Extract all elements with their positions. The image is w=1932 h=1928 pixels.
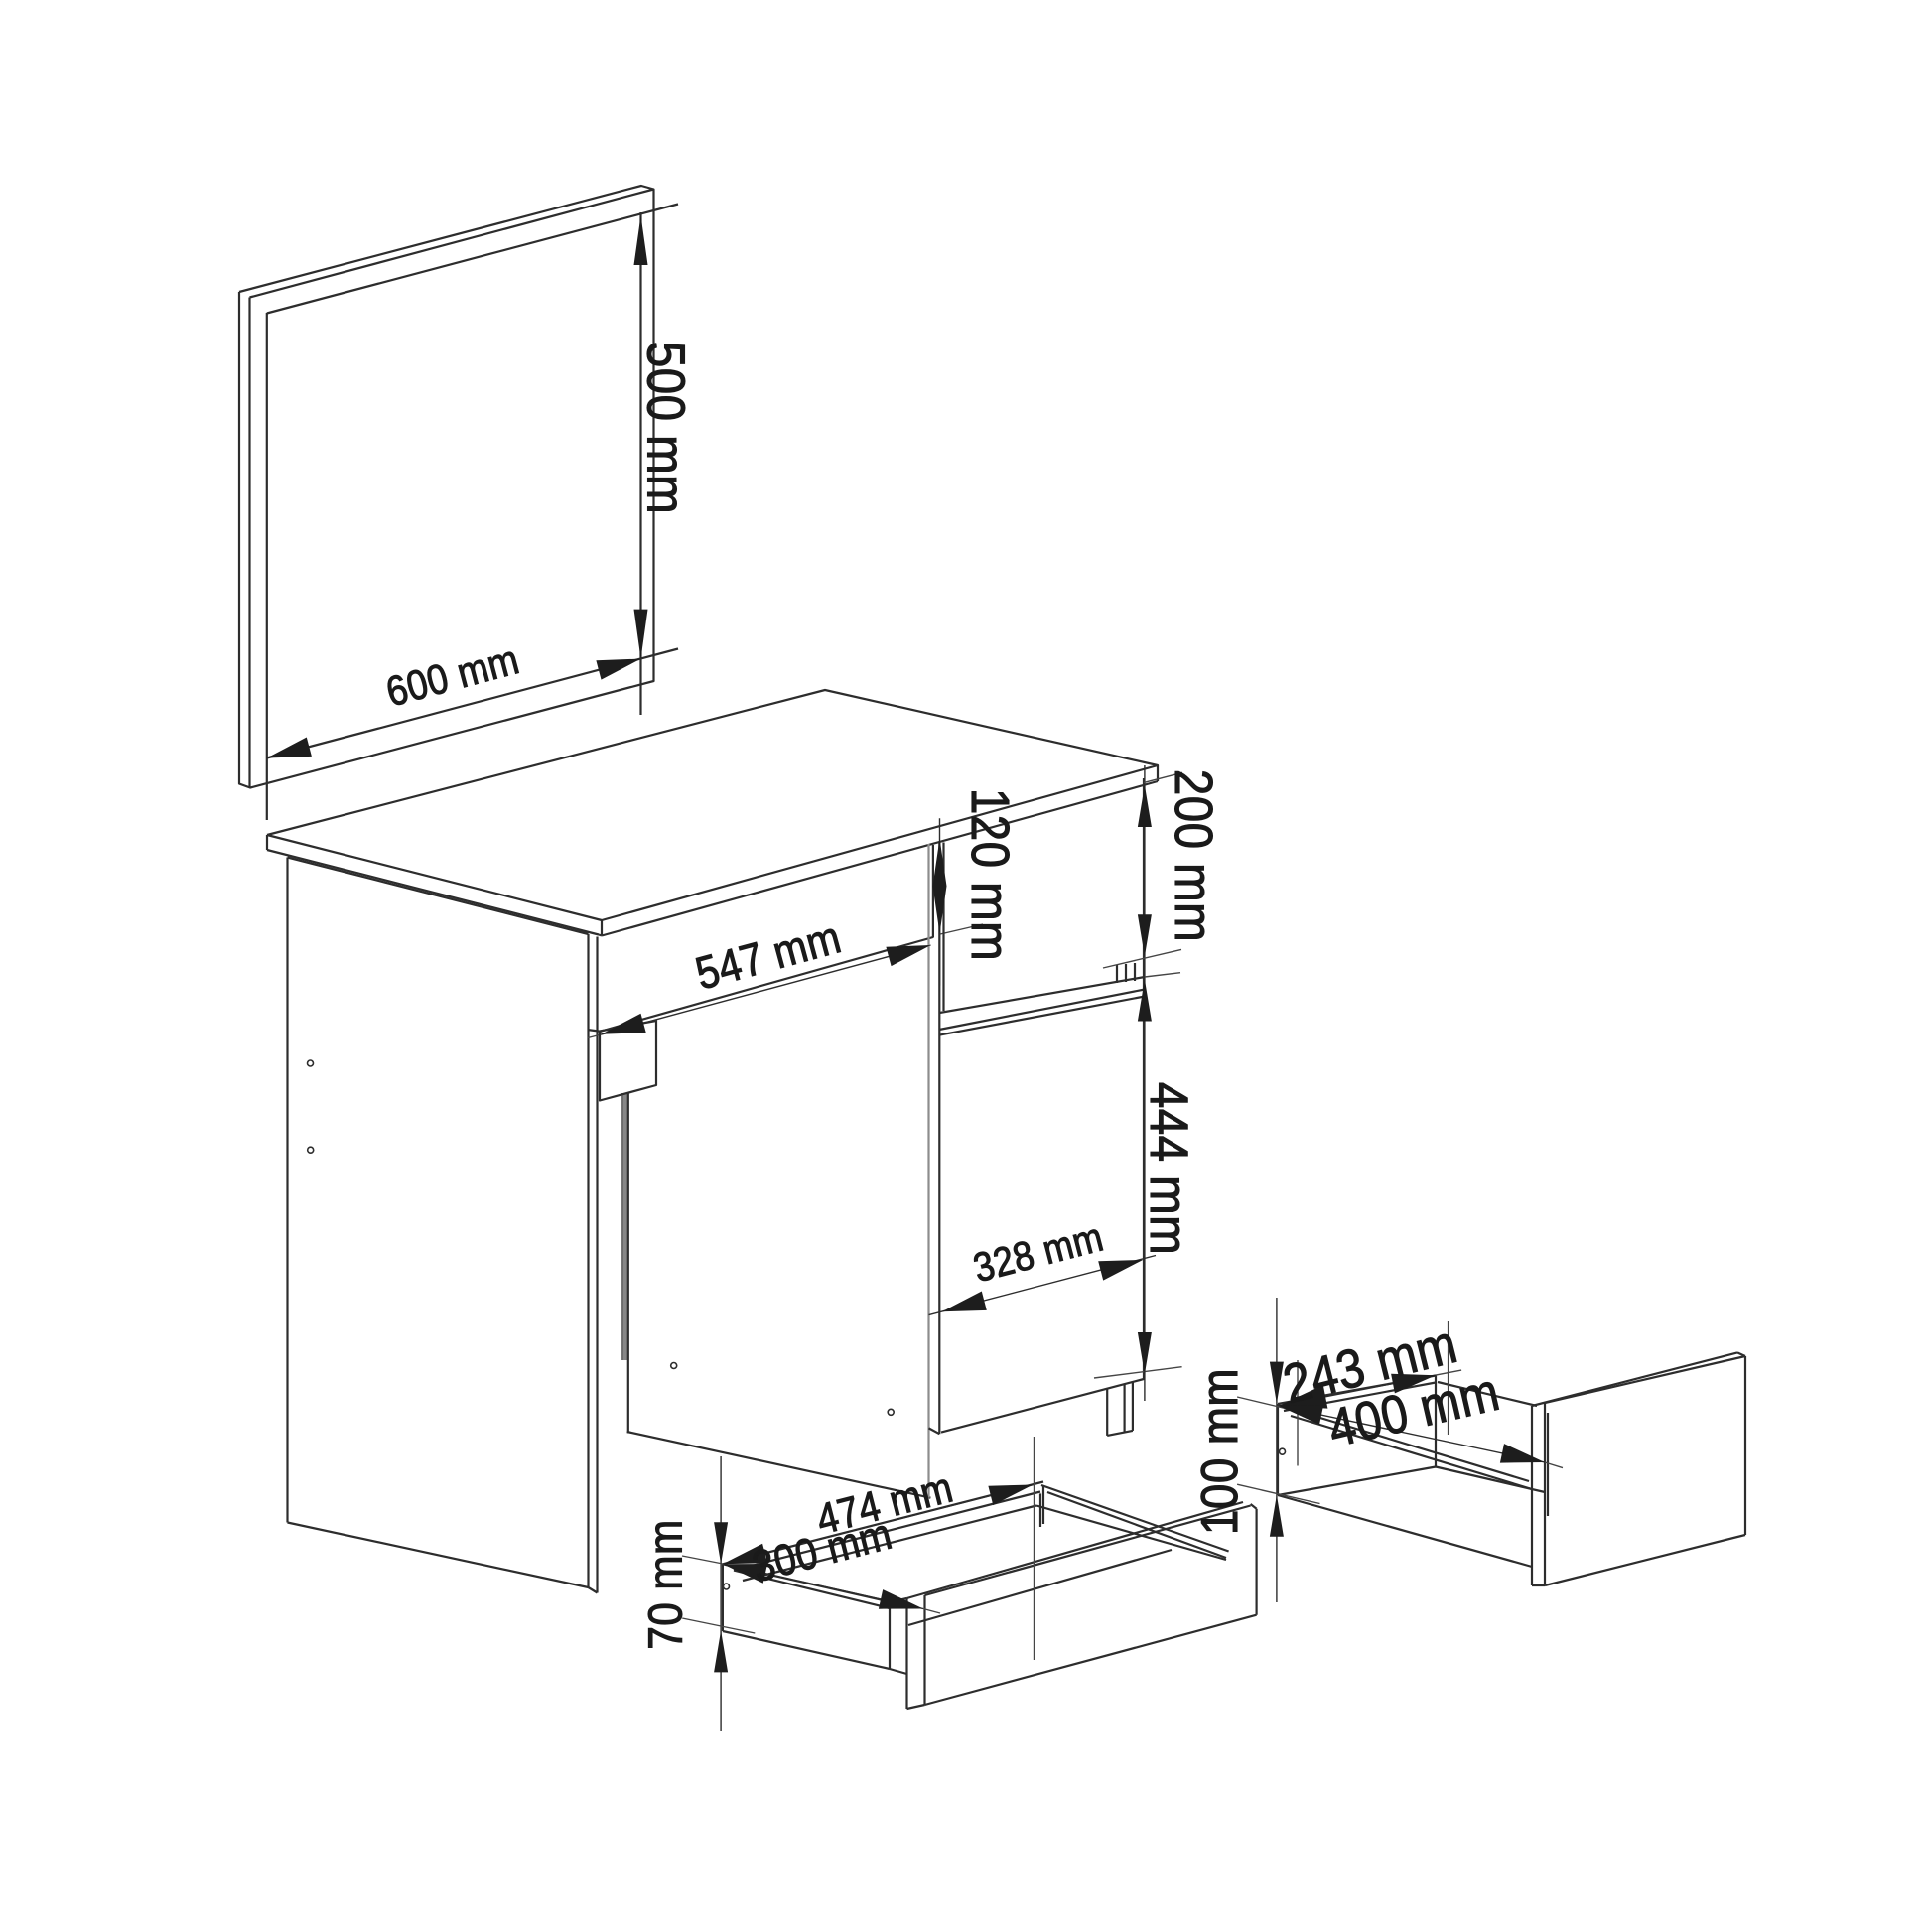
- svg-text:500 mm: 500 mm: [636, 342, 697, 514]
- svg-text:100 mm: 100 mm: [1191, 1368, 1248, 1535]
- svg-text:70 mm: 70 mm: [638, 1519, 692, 1649]
- svg-text:120 mm: 120 mm: [960, 788, 1021, 961]
- svg-text:444 mm: 444 mm: [1139, 1082, 1199, 1255]
- svg-text:200 mm: 200 mm: [1164, 769, 1224, 942]
